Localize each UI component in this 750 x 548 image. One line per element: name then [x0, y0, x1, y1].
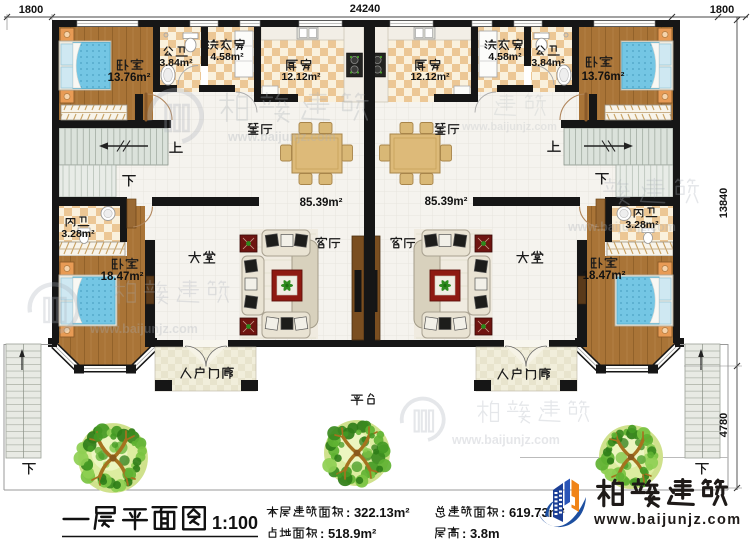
svg-text:www.baijunjz.com: www.baijunjz.com — [89, 322, 198, 336]
svg-text:www.baijunjz.com: www.baijunjz.com — [227, 130, 336, 144]
svg-text:85.39m²: 85.39m² — [425, 196, 468, 208]
svg-text:18.47m²: 18.47m² — [101, 271, 144, 283]
svg-text:www.baijunjz.com: www.baijunjz.com — [451, 433, 560, 447]
svg-text:85.39m²: 85.39m² — [300, 197, 343, 209]
svg-text:: 518.9m²: : 518.9m² — [320, 526, 377, 541]
svg-text:: 322.13m²: : 322.13m² — [346, 505, 410, 520]
svg-text:www.baijunjz.com: www.baijunjz.com — [461, 121, 557, 133]
svg-text:3.28m²: 3.28m² — [625, 219, 659, 231]
svg-text:3.84m²: 3.84m² — [159, 57, 193, 69]
svg-text:13840: 13840 — [718, 188, 730, 219]
svg-text:4780: 4780 — [718, 413, 730, 437]
svg-text:3.28m²: 3.28m² — [61, 228, 95, 240]
svg-text:1800: 1800 — [19, 4, 43, 16]
svg-text:24240: 24240 — [350, 3, 381, 15]
svg-text:: 3.8m: : 3.8m — [462, 526, 500, 541]
svg-text:3.84m²: 3.84m² — [531, 57, 565, 69]
svg-text:www.baijunjz.com: www.baijunjz.com — [593, 512, 742, 528]
svg-text:13.76m²: 13.76m² — [108, 72, 151, 84]
svg-text:18.47m²: 18.47m² — [583, 270, 626, 282]
svg-text:www.baijunjz.com: www.baijunjz.com — [567, 220, 676, 234]
svg-text:13.76m²: 13.76m² — [582, 71, 625, 83]
svg-text:4.58m²: 4.58m² — [210, 51, 244, 63]
svg-text:12.12m²: 12.12m² — [281, 71, 321, 83]
svg-text:1800: 1800 — [710, 4, 734, 16]
svg-text:1:100: 1:100 — [212, 513, 258, 533]
svg-text:12.12m²: 12.12m² — [410, 71, 450, 83]
svg-text:4.58m²: 4.58m² — [488, 51, 522, 63]
